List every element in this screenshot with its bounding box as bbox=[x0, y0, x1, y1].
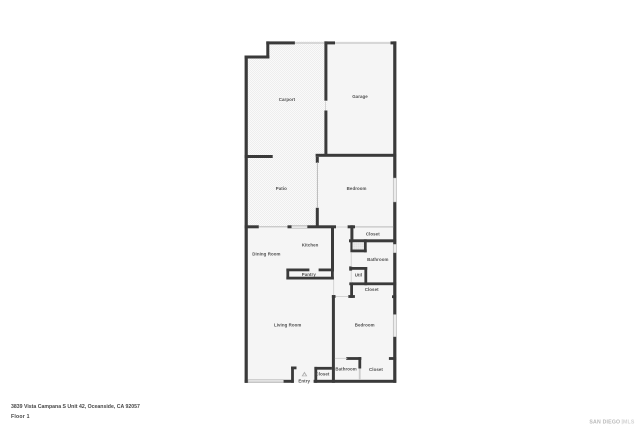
svg-text:Carport: Carport bbox=[279, 97, 296, 102]
svg-text:Dining Room: Dining Room bbox=[252, 252, 280, 257]
svg-text:Pantry: Pantry bbox=[302, 272, 317, 277]
svg-text:Util: Util bbox=[355, 273, 362, 278]
svg-text:Entry: Entry bbox=[298, 379, 310, 384]
svg-text:Floor 1: Floor 1 bbox=[11, 414, 30, 420]
svg-text:MLS: MLS bbox=[623, 419, 635, 425]
svg-text:Bathroom: Bathroom bbox=[335, 367, 356, 372]
svg-text:Closet: Closet bbox=[366, 231, 380, 236]
svg-text:Bedroom: Bedroom bbox=[355, 322, 375, 327]
svg-text:Bathroom: Bathroom bbox=[367, 257, 388, 262]
svg-text:Bedroom: Bedroom bbox=[347, 186, 367, 191]
svg-text:Kitchen: Kitchen bbox=[302, 243, 319, 248]
svg-text:Closet: Closet bbox=[316, 371, 330, 376]
svg-text:Living Room: Living Room bbox=[274, 322, 301, 327]
svg-text:SAN DIEGO: SAN DIEGO bbox=[589, 419, 620, 425]
svg-text:3839 Vista Campana S Unit 42,: 3839 Vista Campana S Unit 42, Oceanside,… bbox=[11, 404, 140, 410]
svg-text:Closet: Closet bbox=[365, 287, 379, 292]
svg-text:Patio: Patio bbox=[276, 186, 287, 191]
svg-text:Closet: Closet bbox=[369, 367, 383, 372]
svg-text:Garage: Garage bbox=[352, 94, 368, 99]
